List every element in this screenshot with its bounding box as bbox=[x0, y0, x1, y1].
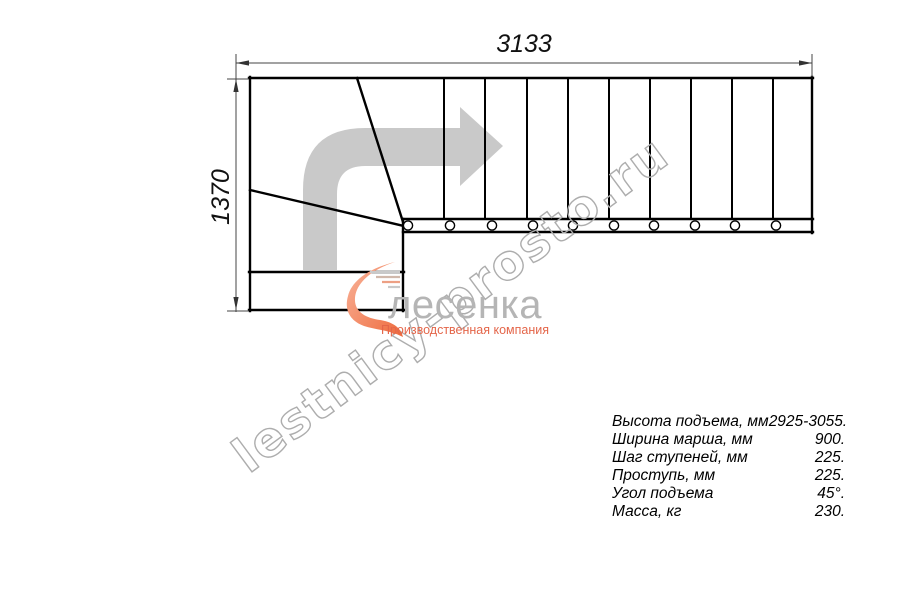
arrowhead-down bbox=[233, 297, 238, 310]
baluster-circle bbox=[771, 221, 780, 230]
baluster-circle bbox=[403, 221, 412, 230]
baluster-circle bbox=[730, 221, 739, 230]
spec-value: 2925-3055. bbox=[769, 413, 847, 431]
height-dimension-label: 1370 bbox=[207, 147, 235, 247]
baluster-circle bbox=[649, 221, 658, 230]
baluster-circle bbox=[690, 221, 699, 230]
spec-row: Шаг ступеней, мм 225. bbox=[612, 449, 845, 467]
spec-row: Высота подъема, мм 2925-3055. bbox=[612, 413, 845, 431]
spec-label: Масса, кг bbox=[612, 503, 681, 521]
spec-row: Масса, кг 230. bbox=[612, 503, 845, 521]
spec-label: Шаг ступеней, мм bbox=[612, 449, 748, 467]
spec-row: Ширина марша, мм 900. bbox=[612, 431, 845, 449]
spec-value: 225. bbox=[815, 467, 845, 485]
staircase-drawing-page: lestnicy-prosto.ru 3133 1370 лесенка Про… bbox=[0, 0, 900, 600]
specs-table: Высота подъема, мм 2925-3055. Ширина мар… bbox=[612, 413, 845, 521]
spec-label: Угол подъема bbox=[612, 485, 713, 503]
spec-value: 45°. bbox=[817, 485, 845, 503]
spec-label: Проступь, мм bbox=[612, 467, 715, 485]
arrowhead-up bbox=[233, 79, 238, 92]
arrowhead-left bbox=[236, 60, 249, 65]
spec-value: 225. bbox=[815, 449, 845, 467]
spec-label: Высота подъема, мм bbox=[612, 413, 769, 431]
spec-row: Угол подъема 45°. bbox=[612, 485, 845, 503]
arrowhead-right bbox=[799, 60, 812, 65]
spec-value: 900. bbox=[815, 431, 845, 449]
spec-row: Проступь, мм 225. bbox=[612, 467, 845, 485]
spec-label: Ширина марша, мм bbox=[612, 431, 753, 449]
baluster-circle bbox=[609, 221, 618, 230]
width-dimension-label: 3133 bbox=[454, 30, 594, 59]
baluster-circle bbox=[487, 221, 496, 230]
spec-value: 230. bbox=[815, 503, 845, 521]
baluster-circle bbox=[445, 221, 454, 230]
